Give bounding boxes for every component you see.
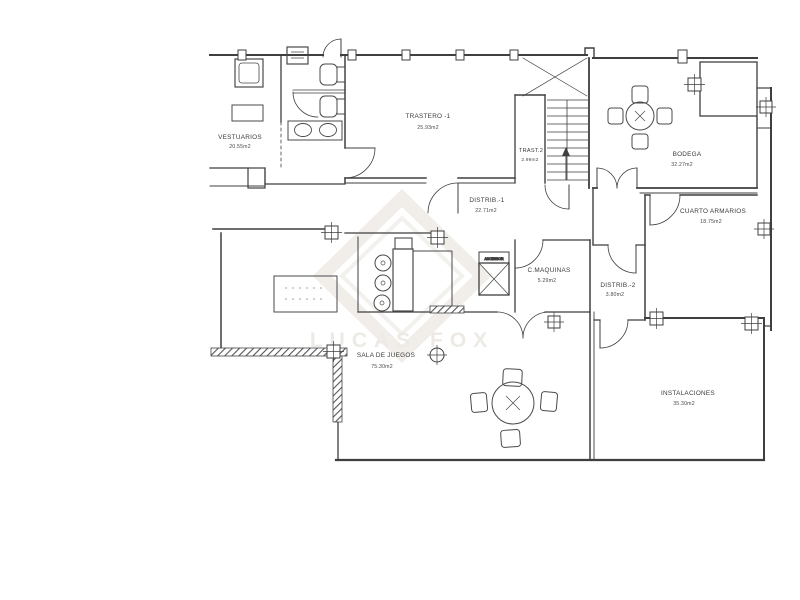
room-label-bodega: BODEGA 32.27m2 [671,151,702,168]
bodega-table-set [608,86,672,149]
svg-text:2.99m2: 2.99m2 [521,157,538,163]
svg-text:18.75m2: 18.75m2 [700,219,722,225]
svg-text:35.30m2: 35.30m2 [673,401,695,407]
svg-text:VESTUARIOS: VESTUARIOS [218,134,262,141]
room-label-distrib-2: DISTRIB.-2 3.80m2 [600,282,635,298]
svg-text:25.93m2: 25.93m2 [417,125,439,131]
svg-text:20.55m2: 20.55m2 [229,144,251,150]
chair-icon [608,108,623,124]
svg-text:BODEGA: BODEGA [673,151,702,158]
svg-text:75.30m2: 75.30m2 [371,364,393,370]
games-table-set [470,369,558,448]
svg-text:3.80m2: 3.80m2 [606,292,625,298]
toilet-icon [320,64,337,85]
sink-counter [288,121,342,140]
chair-icon [657,108,672,124]
svg-text:22.71m2: 22.71m2 [475,208,497,214]
svg-text:C.MAQUINAS: C.MAQUINAS [528,267,571,274]
svg-text:CUARTO ARMARIOS: CUARTO ARMARIOS [680,208,746,215]
kitchenette-fixtures [374,238,452,311]
staircase [547,100,588,180]
round-fixture-icon [374,295,390,311]
svg-text:32.27m2: 32.27m2 [671,162,693,168]
chair-icon [632,86,648,103]
bathroom-fixtures [232,47,345,140]
svg-text:DISTRIB.-2: DISTRIB.-2 [600,282,635,289]
chair-icon [632,134,648,149]
svg-text:DISTRIB.-1: DISTRIB.-1 [469,197,504,204]
room-label-trast-2: TRAST.2 2.99m2 [519,148,543,163]
toilet-icon [320,96,337,117]
room-label-vestuarios: VESTUARIOS 20.55m2 [218,134,262,150]
sink-basin-icon [295,124,312,137]
room-label-c-maquinas: C.MAQUINAS 5.29m2 [528,267,571,284]
round-fixture-icon [375,275,391,291]
floor-plan-svg: LUCAS FOX [0,0,800,600]
room-label-cuarto-armarios: CUARTO ARMARIOS 18.75m2 [680,208,746,225]
room-label-trastero-1: TRASTERO -1 25.93m2 [405,113,450,131]
chair-icon [540,391,558,411]
round-fixture-icon [375,255,391,271]
sink-basin-icon [320,124,337,137]
svg-text:SALA DE JUEGOS: SALA DE JUEGOS [357,352,415,359]
room-label-instalaciones: INSTALACIONES 35.30m2 [661,390,715,407]
chair-icon [470,392,488,412]
svg-text:TRAST.2: TRAST.2 [519,148,543,154]
svg-text:5.29m2: 5.29m2 [538,278,557,284]
bench [232,105,263,121]
svg-text:TRASTERO -1: TRASTERO -1 [405,113,450,120]
room-label-distrib-1: DISTRIB.-1 22.71m2 [469,197,504,214]
floor-plan-page: LUCAS FOX [0,0,800,600]
counter [393,249,413,311]
elevator-label: ASCENSOR [484,257,504,261]
chair-icon [500,429,520,447]
svg-text:INSTALACIONES: INSTALACIONES [661,390,715,397]
room-label-sala-de-juegos: SALA DE JUEGOS 75.30m2 [357,352,415,370]
